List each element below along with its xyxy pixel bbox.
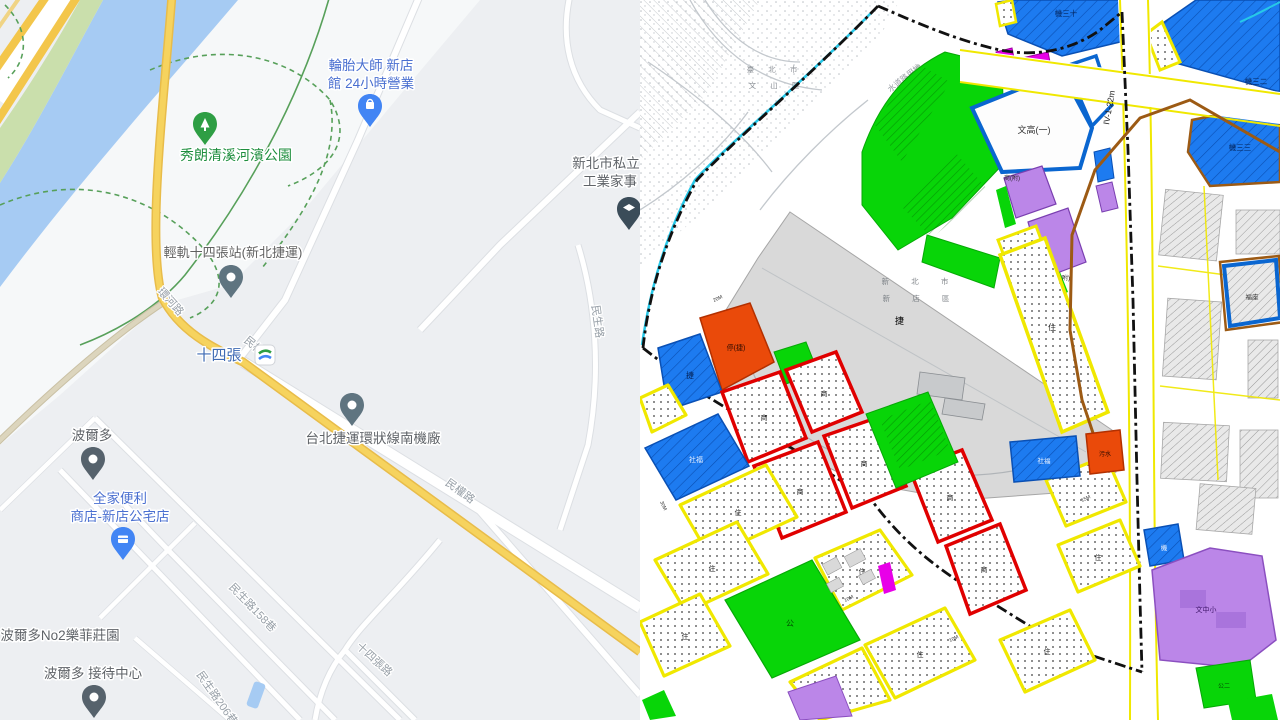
light-rail-station-icon[interactable] [255,345,275,365]
zone-label: 住 [1095,553,1102,562]
school-building [1180,590,1206,608]
poi-label-family2[interactable]: 商店-新店公宅店 [71,509,170,524]
poi-label-park[interactable]: 秀朗清溪河濱公園 [180,147,292,163]
poi-label-bordeaux-no2[interactable]: 波爾多No2樂菲莊園 [0,627,119,643]
school-building [1216,612,1246,628]
zone-label: 商 [821,389,828,398]
maps-canvas: 環河路 民權路 民權路 民生路 民生路158巷 民生路206巷 十四張路 [0,0,1280,720]
poi-label-tire2[interactable]: 館 24小時營業 [328,76,415,91]
zone-label: 捷 [686,370,694,380]
zone-label: 住 [682,632,689,641]
zone-label: 污水 [1099,450,1111,458]
zone-label: 文中小 [1196,605,1217,614]
zone-label: 住 [709,564,716,573]
poi-label-tire[interactable]: 輪胎大師 新店 [329,57,414,73]
poi-label-school2[interactable]: 工業家事 [583,173,637,189]
storefront-icon [118,536,128,544]
shopping-bag-icon [366,102,374,109]
zone-label: 機三三 [1229,142,1252,152]
zhu-strip [996,0,1016,26]
zone-label: 商 [797,487,804,496]
zone-label: 商 [861,459,868,468]
zone-label: 商 [947,493,954,502]
poi-label-depot[interactable]: 台北捷運環狀線南機廠 [306,430,441,446]
zone-label: 住 [735,508,742,517]
google-map-panel[interactable]: 環河路 民權路 民權路 民生路 民生路158巷 民生路206巷 十四張路 [0,0,641,720]
zone-label: 機三十 [1055,8,1078,18]
zone-label: 商 [981,565,988,574]
poi-label-family[interactable]: 全家便利 [93,490,147,506]
admin-label-taipei: 臺 北 市 [747,64,804,74]
poi-label-bordeaux[interactable]: 波爾多 [72,427,113,443]
zone-label: 社福 [1038,456,1052,465]
station-name-label[interactable]: 十四張 [196,347,241,364]
zone-label: 公 [786,619,794,628]
zone-label: 商(附) [1004,174,1020,182]
poi-label-lrt-station[interactable]: 輕軌十四張站(新北捷運) [164,245,303,260]
zone-label: 文高(一) [1018,124,1051,135]
zone-label: 機 [1161,543,1168,552]
poi-label-school[interactable]: 新北市私立 [572,155,640,171]
zone-label: 公二 [1218,683,1230,690]
zone-label: 福座 [1246,292,1260,301]
depot-jie-char: 捷 [895,315,904,326]
poi-label-reception[interactable]: 波爾多 接待中心 [44,665,143,681]
zone-label: 商 [761,413,768,422]
zone-label: 社福 [689,455,703,464]
zone-label: 住 [917,650,924,659]
admin-label-xindian: 新 店 區 [883,293,960,303]
admin-label-xinbei: 新 北 市 [882,276,959,286]
zoning-map-panel[interactable]: 臺 北 市 文 山 區 水道路用地 新 北 市 新 店 區 捷 文高(一) 文高… [640,0,1280,720]
zone-label: 住 [1048,322,1056,332]
zone-label: 機三二 [1245,76,1268,86]
zone-label: 停(捷) [727,343,746,352]
dual-map-screenshot: 環河路 民權路 民權路 民生路 民生路158巷 民生路206巷 十四張路 [0,0,1280,720]
zone-label: 住 [1044,647,1051,656]
fuzuo-zone: 福座 [1220,256,1280,330]
